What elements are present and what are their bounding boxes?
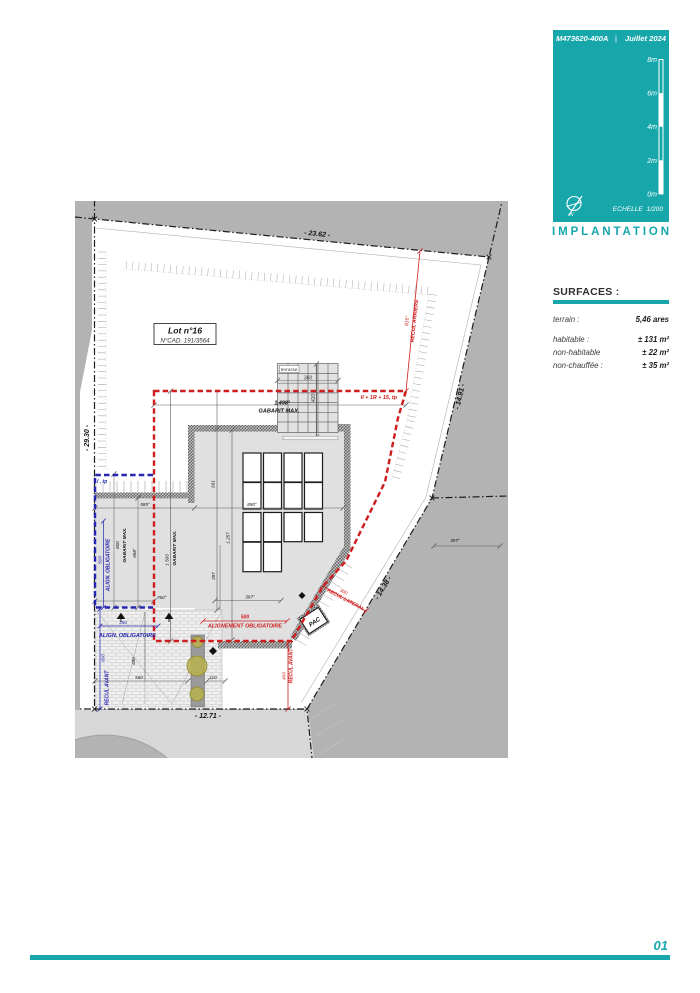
svg-text:816°: 816°	[404, 315, 411, 326]
svg-text:110: 110	[209, 675, 217, 680]
svg-text:350: 350	[119, 620, 127, 626]
svg-text:ALIGN. OBLIGATOIRE: ALIGN. OBLIGATOIRE	[106, 538, 112, 592]
svg-text:800: 800	[115, 541, 120, 549]
svg-text:N°CAD. 191/3564: N°CAD. 191/3564	[160, 338, 210, 345]
svg-text:GABARIT MAX.: GABARIT MAX.	[172, 530, 178, 565]
svg-text:397°: 397°	[245, 595, 255, 600]
svg-text:1.257: 1.257	[226, 532, 231, 544]
svg-text:650: 650	[131, 657, 136, 665]
svg-text:1,498°: 1,498°	[274, 401, 290, 407]
svg-text:0m: 0m	[647, 191, 657, 198]
svg-text:397°: 397°	[450, 538, 460, 543]
svg-text:6m: 6m	[647, 91, 657, 98]
svg-text:1 500: 1 500	[165, 554, 170, 566]
svg-text:RECUL AVANT: RECUL AVANT	[105, 670, 111, 706]
svg-text:N: N	[570, 212, 575, 218]
svg-text:Lot n°16: Lot n°16	[168, 326, 202, 336]
svg-text:GABARIT MAX.: GABARIT MAX.	[258, 409, 299, 415]
svg-text:- 29.30 -: - 29.30 -	[84, 424, 91, 451]
svg-text:ALIGNEMENT OBLIGATOIRE: ALIGNEMENT OBLIGATOIRE	[207, 624, 282, 630]
svg-text:420: 420	[311, 394, 317, 403]
svg-text:658°: 658°	[132, 548, 137, 558]
svg-text:II + 1R + 15, tp: II + 1R + 15, tp	[361, 395, 398, 401]
svg-text:500: 500	[98, 556, 104, 564]
svg-text:589°: 589°	[140, 502, 150, 507]
svg-text:ALIGN. OBLIGATOIRE: ALIGN. OBLIGATOIRE	[98, 633, 156, 639]
svg-text:360: 360	[304, 376, 313, 382]
svg-text:ECHELLE 1/200: ECHELLE 1/200	[613, 206, 664, 213]
svg-text:661: 661	[211, 480, 216, 488]
svg-text:terrasse: terrasse	[281, 367, 298, 372]
svg-text:8m: 8m	[647, 57, 657, 64]
svg-text:890°: 890°	[247, 502, 257, 507]
svg-text:397: 397	[211, 572, 216, 580]
svg-text:RECUL AVANT: RECUL AVANT	[289, 648, 295, 684]
svg-text:500: 500	[241, 615, 250, 621]
svg-text:4m: 4m	[647, 124, 657, 131]
svg-text:I , tp: I , tp	[97, 479, 107, 485]
svg-text:- 12.71 -: - 12.71 -	[195, 713, 222, 720]
svg-text:600: 600	[101, 654, 107, 662]
svg-text:760°: 760°	[157, 595, 167, 600]
svg-text:2m: 2m	[646, 158, 657, 165]
svg-text:GABARIT MAX.: GABARIT MAX.	[122, 527, 128, 562]
svg-text:400: 400	[282, 672, 288, 680]
svg-text:560: 560	[135, 675, 143, 680]
